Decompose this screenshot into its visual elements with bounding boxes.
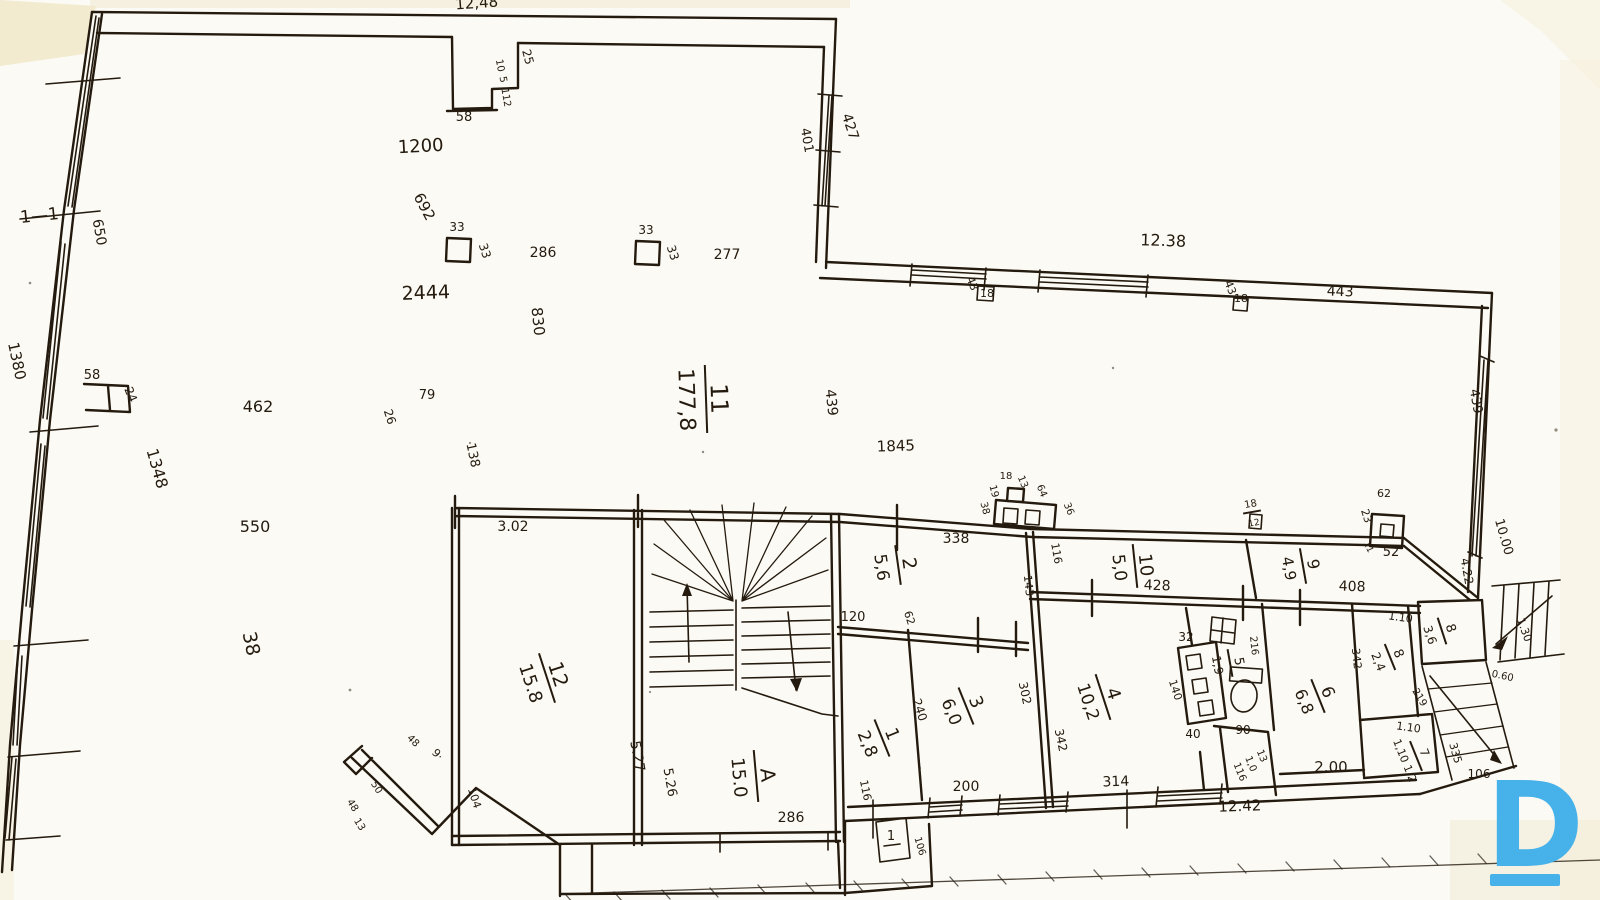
- svg-text:12: 12: [1248, 518, 1261, 530]
- svg-text:177,8: 177,8: [672, 368, 699, 432]
- dim-label: 120: [841, 610, 866, 625]
- dim-label: 12.38: [1140, 230, 1186, 251]
- dim-label: 650: [89, 218, 109, 247]
- svg-text:6,8: 6,8: [1291, 686, 1318, 717]
- svg-text:8: 8: [1389, 647, 1406, 660]
- svg-text:18: 18: [1243, 498, 1257, 511]
- dim-label: 428: [1144, 578, 1171, 595]
- room-label-4: 410,2: [1071, 668, 1131, 728]
- wall-rooms-bottom: [452, 832, 840, 845]
- fixtures: [446, 238, 1262, 713]
- dim-label: 1380: [4, 340, 30, 381]
- room-label-1: 12,8: [850, 712, 909, 767]
- section-markers: 1—1 1: [19, 204, 910, 862]
- svg-text:4,9: 4,9: [1278, 555, 1300, 582]
- dimension-labels: 12,4825105112581200692333328633332772444…: [4, 0, 1534, 857]
- room-label-6: 66,8: [1289, 672, 1344, 722]
- dim-label: 427: [838, 112, 861, 142]
- flue-room2-openings: [1003, 508, 1040, 525]
- wall-wing-bottom: [845, 780, 1420, 821]
- dim-label: 443: [1327, 284, 1354, 301]
- dim-label: 4.22: [1458, 557, 1476, 586]
- dim-label: 11: [1361, 540, 1375, 555]
- dim-label: 692: [410, 190, 439, 224]
- dim-label: 200: [953, 779, 980, 795]
- svg-text:10,2: 10,2: [1072, 681, 1103, 723]
- dim-label: 286: [530, 245, 557, 261]
- dim-label: 79: [419, 388, 436, 403]
- hall-column-2: [635, 241, 660, 265]
- dim-label: 314: [1102, 774, 1129, 791]
- column-52-core: [1380, 524, 1394, 537]
- dim-label: 439: [1466, 388, 1485, 415]
- dim-label: 462: [243, 397, 274, 416]
- dim-label: 32: [1178, 630, 1193, 644]
- dim-label: 143: [1021, 575, 1036, 597]
- dim-label: 401: [797, 127, 816, 154]
- dim-label: 439: [822, 388, 841, 416]
- dim-label: 58: [456, 110, 473, 125]
- section-marker-1-1: 1—1: [19, 204, 60, 228]
- dim-label: 18: [980, 287, 994, 300]
- br-stair-treads: [1428, 683, 1508, 757]
- dim-label: 116: [857, 779, 874, 802]
- logo-letter: D: [1486, 756, 1584, 894]
- dim-label: 5.27: [626, 740, 647, 773]
- dim-label: 18: [1234, 292, 1248, 305]
- dim-label: 335: [1446, 741, 1464, 765]
- dim-label: 277: [714, 247, 741, 263]
- dim-label: 219: [1409, 687, 1428, 709]
- dim-label: 5: [496, 75, 508, 83]
- dim-label: 138: [463, 442, 483, 469]
- section-marker-bottom-label: 1: [887, 829, 895, 844]
- dim-label: 1348: [143, 446, 172, 490]
- stair-arrow-down-head: [790, 678, 802, 692]
- dim-label: 25: [519, 48, 536, 66]
- wc-toilet-bowl: [1229, 679, 1258, 714]
- stair-treads-right: [742, 606, 830, 678]
- dim-label: 38: [977, 501, 991, 516]
- dim-label: 18: [1000, 471, 1013, 482]
- svg-text:1,10 1,2: 1,10 1,2: [1390, 737, 1419, 784]
- stair-treads-left: [650, 610, 733, 687]
- svg-text:5,6: 5,6: [869, 553, 893, 583]
- stair-arrow-up: [687, 585, 689, 662]
- wall-x1030: [1026, 532, 1053, 808]
- dim-label: 9·: [429, 746, 446, 763]
- room-label-2: 25,6: [868, 542, 922, 588]
- dim-label: 302: [1016, 681, 1034, 706]
- dim-label: 38: [238, 630, 265, 658]
- dim-label: 550: [240, 517, 271, 536]
- wall-room2-bottom: [838, 618, 1028, 656]
- dim-label: 5.26: [660, 767, 680, 798]
- svg-text:11: 11: [704, 383, 733, 415]
- svg-text:10: 10: [1134, 552, 1157, 577]
- flue-room4-openings: [1186, 654, 1214, 716]
- logo-underline: [1490, 874, 1560, 886]
- dim-label: 116: [1048, 542, 1064, 565]
- dim-label: 52: [1383, 545, 1400, 560]
- dim-label: 48: [344, 797, 360, 814]
- dim-label: 12.42: [1218, 796, 1262, 815]
- dim-label: 50: [368, 779, 384, 796]
- dim-label: 26: [381, 407, 399, 426]
- dim-label: 58: [84, 368, 101, 383]
- dim-label: 33: [664, 243, 682, 262]
- svg-text:9: 9: [1303, 558, 1323, 571]
- logo: D: [1486, 756, 1584, 894]
- dim-label: 1.10: [1387, 609, 1413, 625]
- room-label-5: 51,9: [1208, 646, 1248, 680]
- dim-label: 64: [1034, 483, 1049, 499]
- floor-plan-svg: 1—1 1 12,4825105112581200692333328633332…: [0, 0, 1600, 900]
- dim-label: 62: [901, 609, 918, 626]
- dim-label: 1.10: [1395, 719, 1421, 735]
- br-stair-arrow: [1430, 676, 1500, 762]
- room-label-8: 82,4: [1366, 638, 1410, 677]
- floor-plan-scan: 1—1 1 12,4825105112581200692333328633332…: [0, 0, 1600, 900]
- room-label-9: 94,9: [1277, 545, 1326, 588]
- room-label-11: 11177,8: [672, 364, 734, 434]
- svg-text:15.0: 15.0: [726, 757, 750, 799]
- wc-sink: [1210, 617, 1236, 644]
- dim-label: 33: [476, 241, 494, 260]
- dim-label: 2444: [401, 281, 450, 305]
- room-label-8: 83,6: [1419, 613, 1462, 651]
- svg-text:1,9: 1,9: [1209, 655, 1226, 676]
- dim-label: 33: [638, 223, 653, 237]
- svg-text:2: 2: [897, 556, 920, 571]
- dim-label: 240: [910, 697, 930, 723]
- wall-room9-left: [1246, 540, 1256, 598]
- dim-label: 12,48: [455, 0, 499, 13]
- svg-text:5: 5: [1230, 656, 1246, 667]
- dim-label: 19: [986, 484, 1000, 499]
- svg-text:2,8: 2,8: [853, 728, 882, 761]
- svg-text:6,0: 6,0: [937, 696, 966, 729]
- svg-text:15.8: 15.8: [514, 661, 546, 706]
- svg-text:A: A: [755, 767, 780, 783]
- svg-text:7: 7: [1416, 746, 1432, 758]
- svg-text:2,4: 2,4: [1368, 650, 1388, 673]
- dim-label: 62: [1377, 487, 1391, 500]
- room-label-12: 1215.8: [512, 646, 578, 712]
- dim-label: 10.00: [1491, 517, 1516, 557]
- dim-label: 830: [528, 306, 549, 336]
- dim-label: 10: [493, 58, 506, 72]
- entry-steps-arrow-head: [1492, 636, 1508, 650]
- dim-label: 13: [351, 816, 367, 833]
- wall-room12-left: [452, 508, 459, 845]
- dim-label: 3.02: [497, 519, 528, 535]
- room-label-A: A15.0: [726, 748, 782, 804]
- stair-arrow-down: [788, 612, 796, 690]
- dim-label: 33: [449, 220, 464, 234]
- svg-text:12: 12: [543, 658, 574, 690]
- hall-column-1: [446, 238, 471, 262]
- svg-text:5,0: 5,0: [1108, 553, 1131, 582]
- ground-line: [560, 860, 1600, 894]
- dim-label: 24: [121, 385, 140, 404]
- staircase-main: [650, 503, 838, 852]
- dim-label: 0.60: [1490, 669, 1514, 684]
- dim-label: 112: [498, 87, 512, 108]
- partition-hall-rooms: [455, 495, 1478, 600]
- dim-label: 338: [943, 531, 970, 547]
- dim-label: 36: [1061, 501, 1076, 517]
- dim-label: 40: [1185, 727, 1200, 741]
- wall-top: [92, 12, 836, 47]
- dim-label: 342: [1349, 648, 1364, 670]
- dim-label: 104: [465, 786, 484, 810]
- stair-center-line: [736, 600, 838, 716]
- dim-label: 48: [404, 733, 421, 750]
- room-label-3: 36,0: [934, 680, 993, 735]
- dim-label: 1845: [876, 436, 915, 455]
- dim-label: 106: [911, 836, 927, 857]
- dim-label: 90: [1235, 723, 1250, 737]
- wall-wing-top: [820, 262, 1492, 308]
- dim-label: 286: [778, 810, 805, 826]
- svg-text:3,6: 3,6: [1420, 624, 1439, 646]
- dim-label: 216: [1247, 636, 1260, 656]
- dim-label: 2.00: [1314, 758, 1347, 776]
- stair-winders-right: [742, 503, 828, 601]
- stub-58-24: [84, 384, 130, 412]
- dim-label: 1200: [397, 135, 444, 158]
- svg-text:8: 8: [1442, 622, 1459, 635]
- dim-label: 342: [1052, 728, 1070, 753]
- dim-label: 408: [1339, 579, 1366, 596]
